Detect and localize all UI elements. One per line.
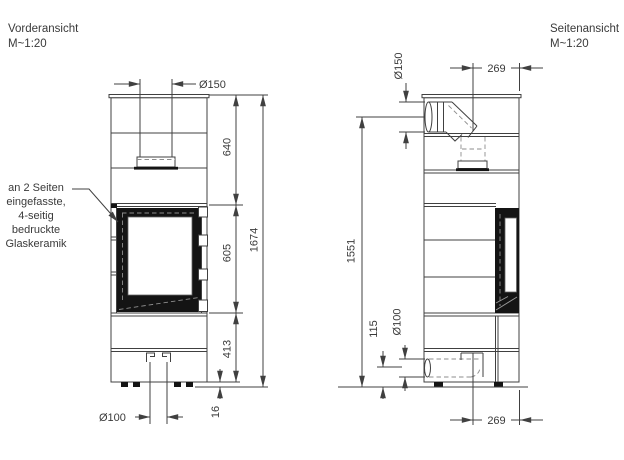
dim-air-diameter-front: Ø100 xyxy=(99,412,183,424)
door-hinge xyxy=(199,269,208,280)
annotation-line-3: 4-seitig xyxy=(18,210,53,222)
dim-1551: 1551 xyxy=(346,117,425,387)
dim-flue-diameter-front-label: Ø150 xyxy=(199,79,226,91)
dim-16: 16 xyxy=(210,369,222,418)
stove-foot xyxy=(174,382,181,387)
annotation-line-5: Glaskeramik xyxy=(5,238,67,250)
dim-air-diameter-side-label: Ø100 xyxy=(392,309,404,336)
door-hinge xyxy=(199,207,208,217)
dim-269-bottom-label: 269 xyxy=(487,415,505,427)
drawing-canvas: Vorderansicht M~1:20 xyxy=(0,0,624,460)
dim-1551-label: 1551 xyxy=(346,239,358,263)
front-stove-body xyxy=(109,79,268,424)
stove-foot xyxy=(121,382,128,387)
side-view-scale: M~1:20 xyxy=(550,38,589,50)
stove-foot xyxy=(133,382,140,387)
dim-413-label: 413 xyxy=(222,340,234,358)
annotation-line-4: bedruckte xyxy=(12,224,60,236)
stove-foot xyxy=(186,382,193,387)
front-view-scale: M~1:20 xyxy=(8,38,47,50)
front-view-title: Vorderansicht xyxy=(8,23,79,35)
side-stove-body xyxy=(338,95,528,388)
side-view: Seitenansicht M~1:20 xyxy=(338,23,620,427)
dim-640-label: 640 xyxy=(222,138,234,156)
stove-foot xyxy=(434,382,443,387)
technical-drawing-stove: Vorderansicht M~1:20 xyxy=(0,0,624,460)
front-glass-door xyxy=(111,204,208,312)
dim-605: 605 xyxy=(222,205,237,313)
side-view-title: Seitenansicht xyxy=(550,23,620,35)
dim-flue-diameter-front: Ø150 xyxy=(114,79,226,91)
stove-foot xyxy=(494,382,503,387)
dim-flue-diameter-side: Ø150 xyxy=(393,53,425,149)
dim-1674: 1674 xyxy=(249,95,264,387)
dim-269-top-label: 269 xyxy=(487,63,505,75)
dim-640: 640 xyxy=(222,95,237,205)
dim-605-label: 605 xyxy=(222,244,234,262)
door-glass-window xyxy=(128,217,192,295)
dim-flue-diameter-side-label: Ø150 xyxy=(393,53,405,80)
dim-413: 413 xyxy=(222,313,237,382)
glass-annotation: an 2 Seiten eingefasste, 4-seitig bedruc… xyxy=(5,182,118,250)
side-glass-window xyxy=(505,218,517,292)
door-hinge xyxy=(199,300,208,312)
front-view: Vorderansicht M~1:20 xyxy=(5,23,268,424)
dim-air-diameter-side: Ø100 xyxy=(392,309,426,391)
side-glass-band xyxy=(495,208,519,313)
annotation-line-2: eingefasste, xyxy=(6,196,65,208)
dim-115-label: 115 xyxy=(368,320,380,338)
door-hinge xyxy=(199,235,208,246)
dim-16-label: 16 xyxy=(210,406,222,418)
dim-1674-label: 1674 xyxy=(249,228,261,252)
dim-air-diameter-front-label: Ø100 xyxy=(99,412,126,424)
annotation-line-1: an 2 Seiten xyxy=(8,182,64,194)
